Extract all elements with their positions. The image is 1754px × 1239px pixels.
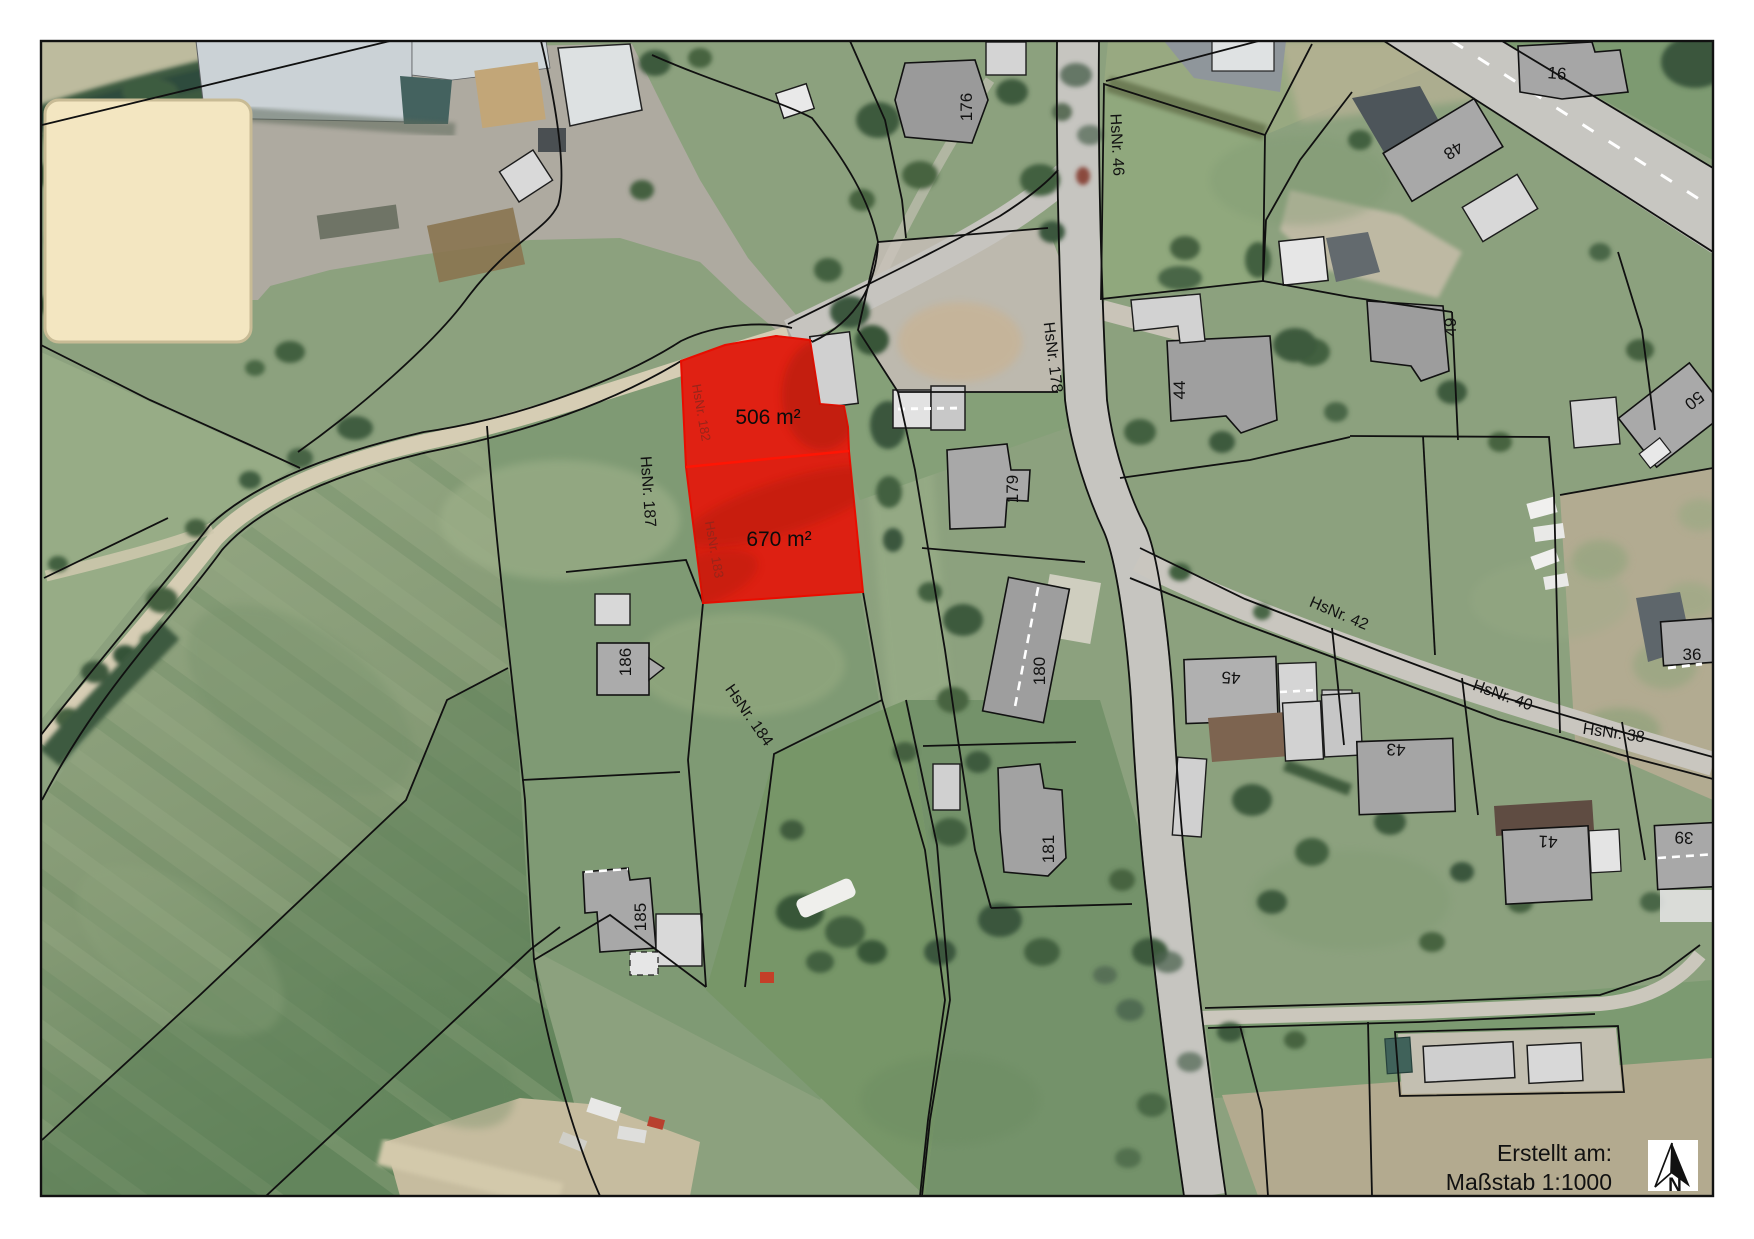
svg-text:43: 43 [1386, 740, 1406, 760]
svg-text:HsNr. 46: HsNr. 46 [1106, 113, 1126, 176]
svg-text:49: 49 [1441, 318, 1460, 337]
svg-text:185: 185 [631, 903, 650, 931]
svg-text:670 m²: 670 m² [746, 528, 811, 551]
svg-text:Erstellt am:: Erstellt am: [1497, 1140, 1612, 1166]
svg-text:45: 45 [1221, 668, 1241, 688]
svg-text:186: 186 [616, 648, 635, 676]
svg-text:181: 181 [1039, 835, 1058, 863]
svg-text:Maßstab 1:1000: Maßstab 1:1000 [1446, 1169, 1612, 1195]
svg-text:41: 41 [1538, 832, 1558, 852]
svg-text:39: 39 [1674, 828, 1694, 848]
svg-text:N: N [1668, 1175, 1682, 1196]
svg-text:36: 36 [1683, 645, 1702, 664]
svg-text:44: 44 [1170, 381, 1189, 400]
svg-text:179: 179 [1003, 475, 1022, 503]
svg-text:506 m²: 506 m² [735, 406, 800, 429]
svg-text:16: 16 [1547, 63, 1568, 84]
svg-text:176: 176 [957, 93, 976, 121]
svg-text:180: 180 [1030, 657, 1049, 685]
